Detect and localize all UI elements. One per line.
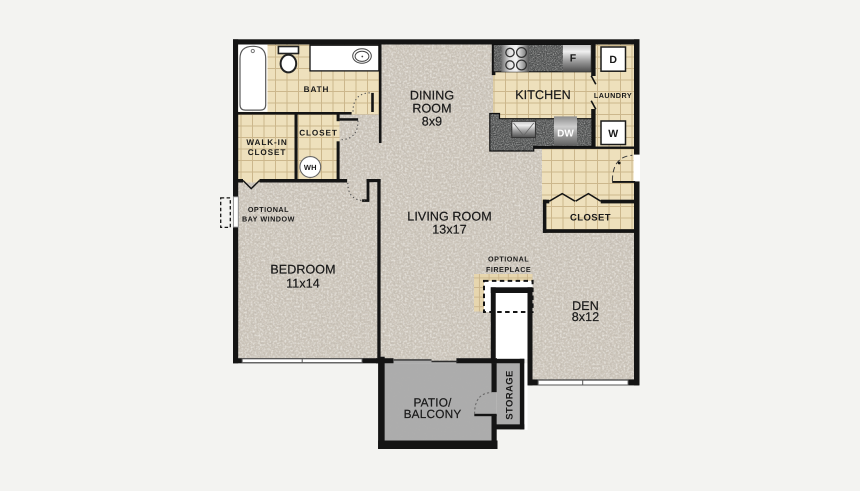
svg-text:CLOSET: CLOSET (299, 129, 338, 138)
svg-text:LAUNDRY: LAUNDRY (594, 91, 632, 100)
svg-text:8x12: 8x12 (572, 310, 600, 324)
svg-text:STORAGE: STORAGE (505, 370, 516, 420)
svg-text:BATH: BATH (304, 85, 330, 94)
svg-text:8x9: 8x9 (422, 115, 442, 129)
svg-text:BAY WINDOW: BAY WINDOW (242, 215, 295, 224)
svg-text:LIVING ROOM: LIVING ROOM (407, 210, 491, 224)
svg-text:OPTIONAL: OPTIONAL (248, 205, 289, 214)
svg-text:W: W (608, 128, 618, 140)
svg-text:11x14: 11x14 (286, 277, 320, 291)
svg-text:DW: DW (557, 129, 574, 140)
svg-text:CLOSET: CLOSET (570, 213, 611, 224)
svg-text:ROOM: ROOM (412, 102, 451, 116)
svg-text:OPTIONAL: OPTIONAL (488, 255, 529, 264)
svg-text:CLOSET: CLOSET (248, 148, 287, 157)
svg-text:BALCONY: BALCONY (404, 407, 462, 421)
svg-text:WALK-IN: WALK-IN (246, 138, 287, 147)
svg-text:D: D (609, 54, 617, 66)
svg-text:F: F (570, 53, 577, 65)
svg-text:DINING: DINING (410, 89, 454, 103)
svg-text:FIREPLACE: FIREPLACE (486, 265, 531, 274)
svg-text:13x17: 13x17 (432, 223, 467, 237)
svg-text:KITCHEN: KITCHEN (515, 88, 571, 102)
svg-text:WH: WH (304, 163, 317, 172)
svg-text:BEDROOM: BEDROOM (270, 263, 335, 277)
